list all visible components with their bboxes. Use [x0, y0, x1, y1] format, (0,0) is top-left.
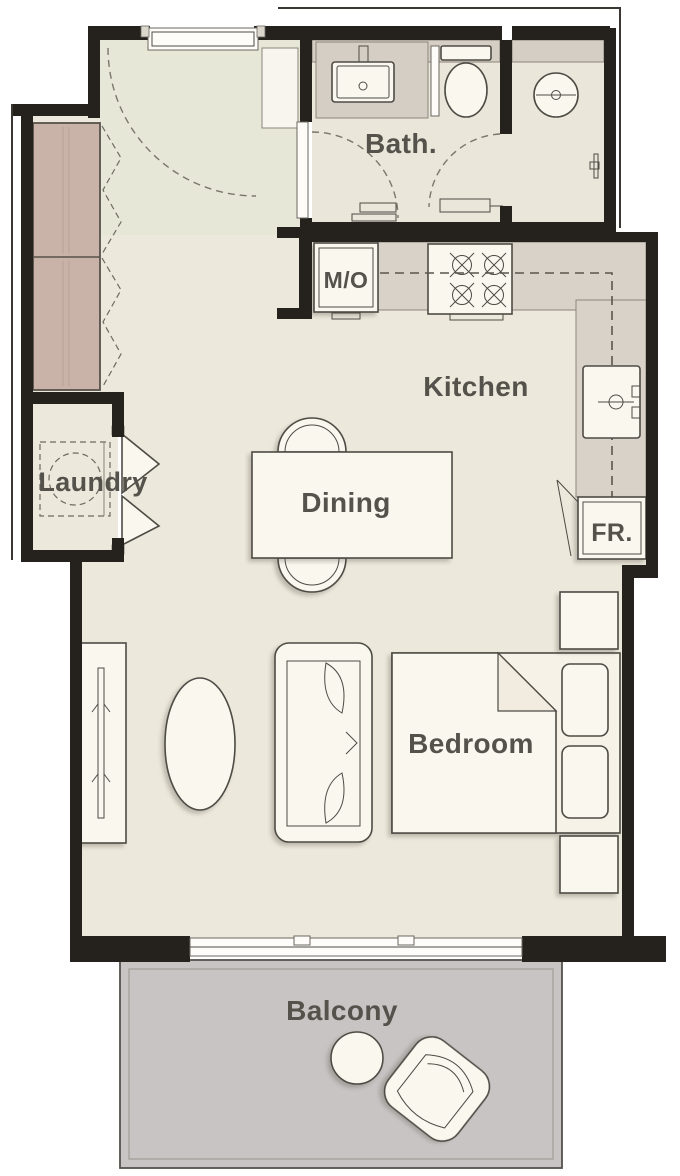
floor-plan-svg: Bath. Kitchen M/O Laundry Dining FR. Bed…	[0, 0, 680, 1176]
wall-pocket-bottom	[277, 308, 312, 319]
nightstand-bottom	[560, 836, 618, 893]
wall-bottom-left	[70, 936, 190, 962]
nightstand-top	[560, 592, 618, 649]
wall-hall-bath-upper	[300, 32, 312, 122]
balcony-label: Balcony	[286, 995, 398, 1026]
bedroom-label: Bedroom	[408, 728, 534, 759]
wall-bath-right	[604, 28, 616, 232]
fridge-label: FR.	[591, 519, 632, 547]
kitchen-label: Kitchen	[423, 371, 528, 402]
tv-console	[80, 643, 126, 843]
wall-bedroom-right	[622, 578, 634, 950]
wall-living-left	[70, 562, 82, 948]
shower-wall-tile-band	[512, 40, 604, 62]
wall-shower-top	[512, 26, 610, 40]
wall-laundry-top	[33, 392, 124, 404]
entry-door-recess	[148, 28, 258, 50]
floor-plan: Bath. Kitchen M/O Laundry Dining FR. Bed…	[0, 0, 680, 1176]
door-jamb	[257, 26, 265, 37]
wall-bottom-right	[522, 936, 666, 962]
window-mullion-2	[398, 936, 414, 945]
wall-pocket-top	[277, 227, 312, 238]
microwave-label: M/O	[324, 267, 369, 293]
window-mullion-1	[294, 936, 310, 945]
sofa	[275, 643, 372, 842]
pillow-1	[562, 664, 608, 736]
wall-pocket-right	[299, 238, 312, 308]
coffee-table	[165, 678, 235, 810]
entry-niche	[262, 48, 298, 128]
wall-laundry-bottom	[33, 550, 118, 562]
wall-laundry-left	[21, 400, 33, 562]
wall-shower-divider-upper	[500, 40, 512, 134]
door-jamb	[141, 26, 149, 37]
dining-label: Dining	[301, 487, 391, 518]
wall-bath-top	[312, 26, 502, 40]
pillow-2	[562, 746, 608, 818]
bath-partition-shelf	[431, 46, 439, 116]
toilet-bowl	[445, 63, 487, 117]
toilet-tank	[441, 46, 491, 60]
wall-left-upper	[21, 104, 33, 400]
bath-sliding-door-panel	[297, 122, 308, 218]
laundry-label: Laundry	[38, 467, 147, 497]
wall-kitchen-top	[312, 232, 658, 242]
bath-label: Bath.	[365, 128, 437, 159]
wall-bath-bottom	[312, 222, 616, 232]
wall-kitchen-right	[646, 232, 658, 572]
balcony-table	[331, 1032, 383, 1084]
wall-laundry-right-upper	[112, 392, 124, 437]
